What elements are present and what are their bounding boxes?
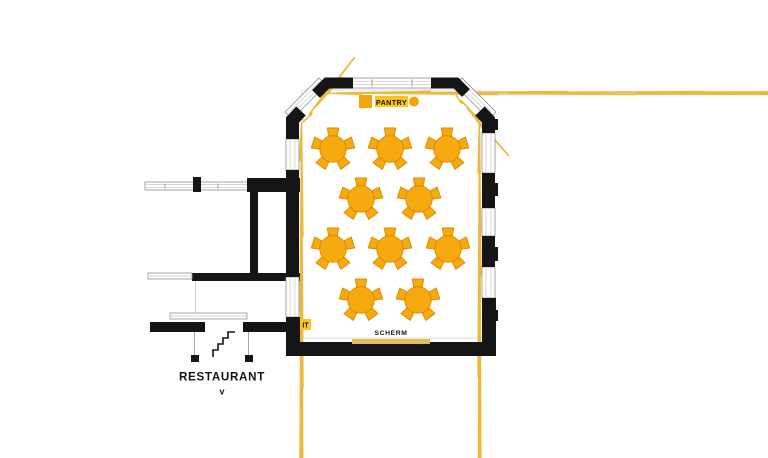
table-top xyxy=(348,186,374,212)
window-segment xyxy=(482,267,495,298)
table-top xyxy=(320,136,346,162)
restaurant-label: RESTAURANT xyxy=(179,371,265,384)
table-top xyxy=(434,136,460,162)
chair xyxy=(384,228,395,236)
floor-plan-canvas: PANTRY SCHERM IT RESTAURANT v xyxy=(0,0,768,458)
chair xyxy=(412,279,423,287)
table-top xyxy=(348,287,374,313)
table-top xyxy=(377,236,403,262)
column-marker xyxy=(191,355,199,362)
table-top xyxy=(405,287,431,313)
chair xyxy=(355,178,366,186)
window-segment xyxy=(286,277,299,317)
room-interior xyxy=(296,85,484,344)
wall-pilaster xyxy=(493,310,498,321)
chair xyxy=(327,128,338,136)
curtain-drape xyxy=(478,122,481,458)
pantry-marker-square xyxy=(359,95,372,108)
pantry-label: PANTRY xyxy=(376,98,407,107)
chair xyxy=(441,128,452,136)
stairs-icon xyxy=(213,332,235,357)
screen-label: SCHERM xyxy=(374,330,407,337)
window-segment xyxy=(482,208,495,236)
wall-column xyxy=(193,177,201,192)
table-top xyxy=(406,186,432,212)
wall-segment xyxy=(250,192,258,275)
curtain-drape xyxy=(300,122,303,458)
wall-segment xyxy=(286,342,496,356)
window-segment xyxy=(286,139,299,170)
wall-pilaster xyxy=(493,247,498,261)
it-label: IT xyxy=(302,322,309,329)
corridor xyxy=(145,177,300,362)
wall-pilaster xyxy=(493,183,498,196)
wall-segment xyxy=(192,273,300,281)
table-top xyxy=(320,236,346,262)
chair xyxy=(384,128,395,136)
wall-segment xyxy=(286,170,299,277)
chair xyxy=(413,178,424,186)
window-segment xyxy=(148,273,192,279)
wall-segment xyxy=(150,322,205,332)
table-top xyxy=(435,236,461,262)
floor-plan-svg: PANTRY SCHERM IT RESTAURANT v xyxy=(0,0,768,458)
chair xyxy=(355,279,366,287)
chair xyxy=(327,228,338,236)
screen-bar xyxy=(352,339,430,344)
window-segment xyxy=(170,313,247,319)
restaurant-direction-label: v xyxy=(219,387,224,397)
wall-pilaster xyxy=(493,119,498,130)
pantry-marker-circle xyxy=(409,97,419,107)
window-segment xyxy=(482,133,495,173)
column-marker xyxy=(245,355,253,362)
chair xyxy=(442,228,453,236)
table-top xyxy=(377,136,403,162)
window-segment xyxy=(352,78,432,88)
